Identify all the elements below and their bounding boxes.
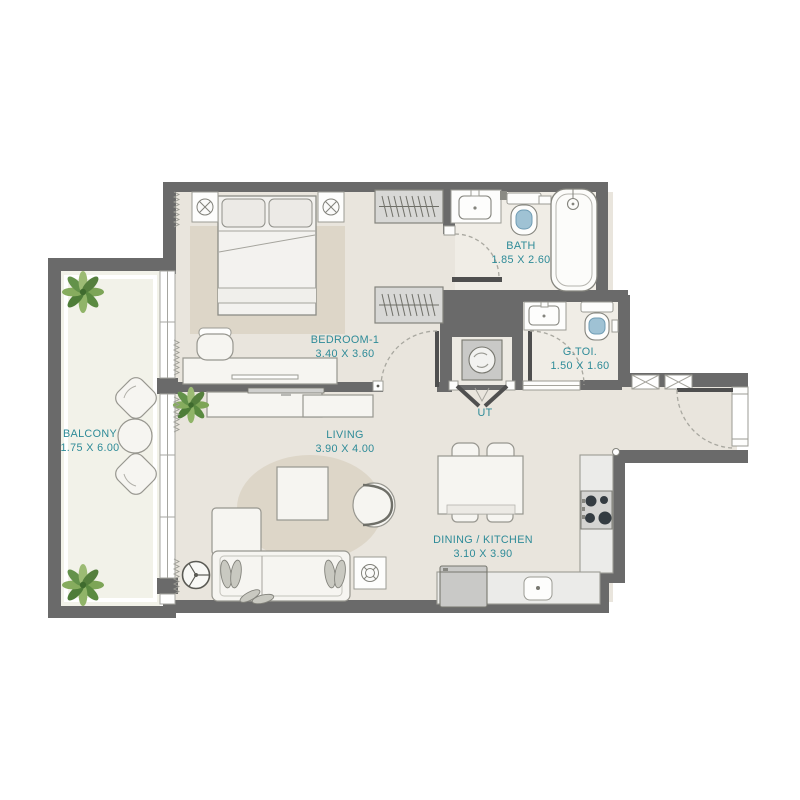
entry-corridor-floor bbox=[613, 387, 737, 452]
nightstand-left bbox=[192, 192, 218, 222]
wall-balcony-bottom bbox=[48, 606, 176, 618]
wall-corridor-bottom bbox=[613, 450, 748, 463]
wall-kitchen-right bbox=[613, 455, 625, 577]
bath-accessory bbox=[500, 191, 507, 200]
armchair bbox=[353, 483, 395, 527]
wall-gtoi-right bbox=[618, 295, 630, 380]
nightstand-right bbox=[318, 192, 344, 222]
washing-machine-icon bbox=[462, 340, 502, 380]
room-dims-bedroom1: 3.40 X 3.60 bbox=[315, 348, 374, 360]
bath-sink-icon bbox=[451, 190, 501, 223]
towel-rail-icon bbox=[539, 196, 551, 204]
side-table bbox=[354, 557, 386, 589]
room-dims-living: 3.90 X 4.00 bbox=[315, 443, 374, 455]
shoe-cabinet-icon-2 bbox=[665, 375, 692, 389]
wall-bath-right bbox=[596, 182, 608, 302]
toilet-icon bbox=[507, 193, 541, 235]
shoe-cabinet-icon bbox=[632, 375, 659, 389]
wall-balcony-left bbox=[48, 258, 61, 618]
wall-gtoi-bottom-stub bbox=[580, 380, 622, 390]
wall-window-pier-1 bbox=[157, 378, 178, 394]
plant-icon bbox=[62, 271, 104, 313]
lamp-icon bbox=[323, 199, 339, 215]
wall-balcony-top bbox=[48, 258, 166, 271]
room-label-dining-kitchen: DINING / KITCHEN bbox=[433, 534, 533, 546]
gtoi-toilet-icon bbox=[581, 302, 613, 340]
tv-icon bbox=[248, 388, 324, 393]
plant-icon bbox=[62, 564, 104, 606]
wardrobe-icon-2 bbox=[375, 287, 443, 323]
floor-fan-icon bbox=[183, 562, 210, 589]
room-dims-bath: 1.85 X 2.60 bbox=[491, 254, 550, 266]
room-label-gtoi: G.TOI. bbox=[563, 346, 597, 358]
balcony-table bbox=[118, 419, 152, 453]
wardrobe-icon bbox=[375, 190, 443, 223]
room-dims-dining-kitchen: 3.10 X 3.90 bbox=[453, 548, 512, 560]
desk-chair bbox=[197, 328, 233, 360]
room-dims-gtoi: 1.50 X 1.60 bbox=[550, 360, 609, 372]
kitchen-sink-icon bbox=[524, 577, 552, 600]
fridge-icon bbox=[440, 566, 487, 607]
room-dims-balcony: 1.75 X 6.00 bbox=[60, 442, 119, 454]
room-label-balcony: BALCONY bbox=[63, 428, 117, 440]
counter-corner-marker bbox=[613, 449, 620, 456]
floor-plan-page: BALCONY 1.75 X 6.00 BEDROOM-1 3.40 X 3.6… bbox=[0, 0, 800, 800]
room-label-living: LIVING bbox=[326, 429, 364, 441]
room-label-bedroom1: BEDROOM-1 bbox=[311, 334, 380, 346]
lamp-icon bbox=[197, 199, 213, 215]
wall-window-pier-2 bbox=[157, 578, 178, 594]
coffee-table bbox=[277, 467, 328, 520]
gtoi-sink-icon bbox=[524, 302, 566, 330]
gtoi-accessory bbox=[612, 320, 618, 332]
floor-plan-canvas: BALCONY 1.75 X 6.00 BEDROOM-1 3.40 X 3.6… bbox=[0, 0, 800, 800]
bathtub-icon bbox=[551, 189, 597, 291]
balcony-window bbox=[160, 271, 175, 604]
room-label-bath: BATH bbox=[506, 240, 535, 252]
room-label-ut: UT bbox=[477, 407, 492, 419]
hob-icon bbox=[581, 491, 612, 529]
bed bbox=[218, 196, 316, 315]
desk bbox=[183, 358, 337, 384]
